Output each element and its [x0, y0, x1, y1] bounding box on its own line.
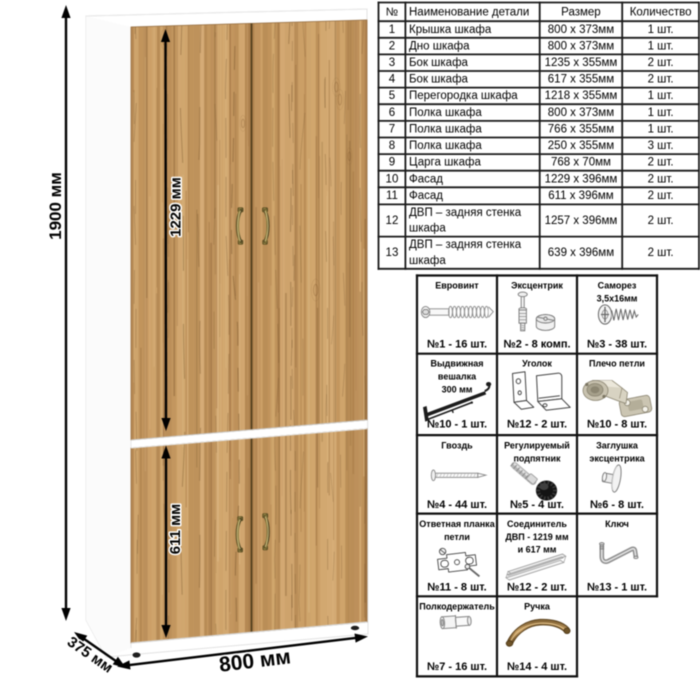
svg-text:1: 1 [389, 24, 395, 36]
svg-text:№10 - 8 шт.: №10 - 8 шт. [587, 419, 647, 431]
svg-text:1235 x 355мм: 1235 x 355мм [545, 57, 618, 69]
svg-text:800 x 373мм: 800 x 373мм [548, 40, 614, 52]
svg-text:подпятник: подпятник [513, 453, 561, 463]
svg-text:11: 11 [386, 190, 398, 202]
svg-text:8: 8 [389, 140, 395, 152]
svg-text:800 x 373мм: 800 x 373мм [548, 107, 614, 119]
svg-text:№4 - 44 шт.: №4 - 44 шт. [427, 499, 487, 511]
svg-text:№12 - 2 шт.: №12 - 2 шт. [507, 581, 567, 593]
svg-text:2 шт.: 2 шт. [648, 57, 674, 69]
svg-text:1900 мм: 1900 мм [46, 172, 65, 240]
svg-text:Ручка: Ручка [524, 602, 551, 612]
svg-text:800 x 373мм: 800 x 373мм [548, 24, 614, 36]
svg-text:ДВП - 1219 мм: ДВП - 1219 мм [505, 532, 569, 542]
svg-text:611 x 396мм: 611 x 396мм [548, 190, 614, 202]
svg-text:639 x 396мм: 639 x 396мм [548, 247, 614, 259]
svg-text:шкафа: шкафа [409, 223, 446, 235]
svg-text:2: 2 [389, 40, 395, 52]
svg-text:1 шт.: 1 шт. [648, 90, 674, 102]
svg-text:Бок шкафа: Бок шкафа [409, 57, 469, 69]
svg-text:2 шт.: 2 шт. [648, 247, 674, 259]
svg-text:1 шт.: 1 шт. [648, 40, 674, 52]
svg-text:1229 мм: 1229 мм [167, 177, 184, 237]
svg-text:1257 x 396мм: 1257 x 396мм [545, 215, 618, 227]
svg-text:Дно шкафа: Дно шкафа [409, 40, 470, 52]
svg-text:Евровинт: Евровинт [435, 281, 479, 291]
svg-text:6: 6 [389, 107, 395, 119]
svg-text:1 шт.: 1 шт. [648, 124, 674, 136]
svg-text:3,5х16мм: 3,5х16мм [597, 294, 638, 304]
svg-text:№13 - 1 шт.: №13 - 1 шт. [587, 581, 647, 593]
svg-text:Саморез: Саморез [598, 281, 637, 291]
svg-text:эксцентрика: эксцентрика [589, 453, 645, 463]
svg-text:Ответная планка: Ответная планка [419, 519, 495, 529]
svg-text:№7 - 16 шт.: №7 - 16 шт. [427, 661, 487, 673]
svg-text:Полка шкафа: Полка шкафа [409, 140, 482, 152]
svg-text:1218 x 355мм: 1218 x 355мм [545, 90, 618, 102]
svg-text:7: 7 [389, 124, 395, 136]
svg-text:Ключ: Ключ [605, 519, 629, 529]
svg-text:1 шт.: 1 шт. [648, 107, 674, 119]
svg-text:ДВП – задняя стенка: ДВП – задняя стенка [409, 239, 522, 251]
svg-text:617 x 355мм: 617 x 355мм [548, 74, 614, 86]
svg-text:2 шт.: 2 шт. [648, 74, 674, 86]
svg-text:Гвоздь: Гвоздь [441, 440, 473, 450]
svg-text:Перегородка шкафа: Перегородка шкафа [409, 90, 518, 102]
svg-text:вешалка: вешалка [438, 372, 477, 382]
svg-text:№14 - 4 шт.: №14 - 4 шт. [507, 661, 567, 673]
svg-text:Соединитель: Соединитель [507, 519, 567, 529]
svg-text:768 x 70мм: 768 x 70мм [551, 157, 611, 169]
svg-text:и 617 мм: и 617 мм [518, 545, 557, 555]
svg-text:Заглушка: Заглушка [596, 440, 639, 450]
svg-text:№3 - 38 шт.: №3 - 38 шт. [587, 339, 647, 351]
svg-text:Регулируемый: Регулируемый [504, 440, 570, 450]
svg-text:№: № [386, 6, 398, 18]
svg-text:Плечо петли: Плечо петли [589, 359, 645, 369]
svg-text:шкафа: шкафа [409, 255, 446, 267]
svg-text:766 x 355мм: 766 x 355мм [548, 124, 614, 136]
svg-text:Выдвижная: Выдвижная [430, 359, 483, 369]
svg-text:ДВП – задняя стенка: ДВП – задняя стенка [409, 207, 522, 219]
svg-text:Наименование детали: Наименование детали [409, 6, 529, 18]
svg-text:2 шт.: 2 шт. [648, 190, 674, 202]
svg-text:5: 5 [389, 90, 395, 102]
svg-text:12: 12 [386, 215, 399, 227]
svg-text:2 шт.: 2 шт. [648, 173, 674, 185]
svg-text:10: 10 [386, 173, 399, 185]
svg-text:Царга шкафа: Царга шкафа [409, 157, 481, 169]
svg-text:№1 - 16 шт.: №1 - 16 шт. [427, 339, 487, 351]
svg-text:Фасад: Фасад [409, 173, 443, 185]
svg-text:№5 - 4 шт.: №5 - 4 шт. [510, 499, 564, 511]
svg-text:№10 - 1 шт.: №10 - 1 шт. [427, 419, 487, 431]
svg-text:петли: петли [444, 532, 470, 542]
svg-text:Фасад: Фасад [409, 190, 443, 202]
svg-text:Полка шкафа: Полка шкафа [409, 124, 482, 136]
svg-text:3: 3 [389, 57, 395, 69]
svg-text:№6 - 8 шт.: №6 - 8 шт. [590, 499, 644, 511]
svg-text:№11 - 8 шт.: №11 - 8 шт. [427, 581, 487, 593]
svg-text:Размер: Размер [561, 6, 601, 18]
svg-text:9: 9 [389, 157, 395, 169]
svg-text:Бок шкафа: Бок шкафа [409, 74, 469, 86]
svg-text:Полкодержатель: Полкодержатель [419, 602, 495, 612]
svg-text:Уголок: Уголок [522, 359, 552, 369]
svg-text:1229 x 396мм: 1229 x 396мм [545, 173, 618, 185]
svg-text:1 шт.: 1 шт. [648, 24, 674, 36]
svg-text:300 мм: 300 мм [442, 385, 473, 395]
svg-text:№2 - 8 комп.: №2 - 8 комп. [503, 339, 570, 351]
svg-text:Крышка шкафа: Крышка шкафа [409, 24, 492, 36]
svg-text:Количество: Количество [630, 6, 692, 18]
svg-text:Эксцентрик: Эксцентрик [511, 281, 563, 291]
svg-text:3 шт.: 3 шт. [648, 140, 674, 152]
svg-text:13: 13 [386, 247, 399, 259]
svg-text:Полка шкафа: Полка шкафа [409, 107, 482, 119]
svg-text:2 шт.: 2 шт. [648, 157, 674, 169]
svg-text:№12 - 2 шт.: №12 - 2 шт. [507, 419, 567, 431]
svg-text:4: 4 [389, 74, 396, 86]
svg-text:611 мм: 611 мм [167, 504, 184, 555]
svg-text:250 x 355мм: 250 x 355мм [548, 140, 614, 152]
svg-text:2 шт.: 2 шт. [648, 215, 674, 227]
